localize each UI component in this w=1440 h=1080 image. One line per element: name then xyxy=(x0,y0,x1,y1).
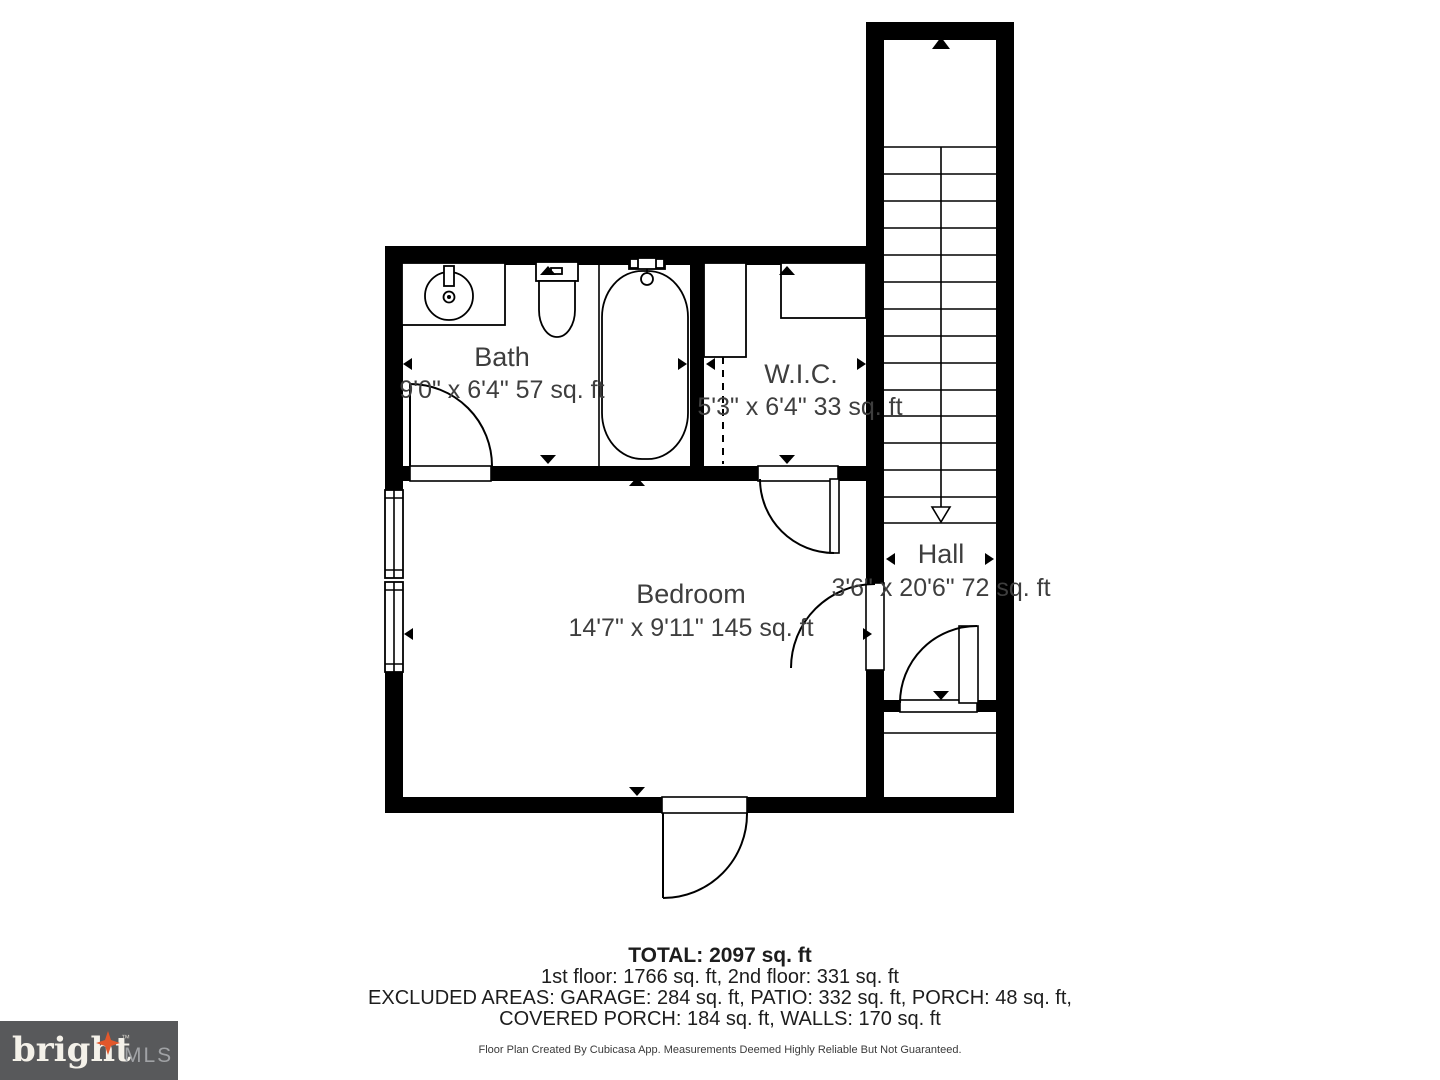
floor-plan-page: Bath 9'0" x 6'4" 57 sq. ft W.I.C. 5'3" x… xyxy=(0,0,1440,1080)
closet-cabinet-icon xyxy=(704,263,746,357)
bedroom-exterior-door-swing xyxy=(663,813,747,898)
room-dims-bedroom: 14'7" x 9'11" 145 sq. ft xyxy=(568,614,813,642)
logo-trademark: ™ xyxy=(121,1033,130,1043)
room-label-hall: Hall xyxy=(918,539,965,569)
bedroom-exterior-door-sill xyxy=(662,797,747,813)
wic-door-sill xyxy=(758,466,838,481)
disclaimer-text: Floor Plan Created By Cubicasa App. Meas… xyxy=(0,1044,1440,1056)
bath-fixtures xyxy=(402,258,688,466)
stairs-down-arrow-icon xyxy=(932,507,950,522)
wic-door-swing xyxy=(760,479,834,553)
room-dims-wic: 5'3" x 6'4" 33 sq. ft xyxy=(697,393,902,421)
area-summary: TOTAL: 2097 sq. ft 1st floor: 1766 sq. f… xyxy=(0,944,1440,1056)
total-area-text: TOTAL: 2097 sq. ft xyxy=(0,944,1440,967)
floor-breakdown-text: 1st floor: 1766 sq. ft, 2nd floor: 331 s… xyxy=(0,967,1440,988)
bathtub-icon xyxy=(602,258,688,459)
room-label-wic: W.I.C. xyxy=(764,359,838,389)
logo-suffix-text: MLS xyxy=(124,1044,173,1068)
bedroom-windows xyxy=(385,490,403,672)
room-dims-bath: 9'0" x 6'4" 57 sq. ft xyxy=(399,376,604,404)
room-label-bath: Bath xyxy=(474,342,530,372)
closet-shelf-icon xyxy=(781,263,866,318)
excluded-areas-text-1: EXCLUDED AREAS: GARAGE: 284 sq. ft, PATI… xyxy=(0,988,1440,1009)
room-dims-hall: 3'6" x 20'6" 72 sq. ft xyxy=(831,574,1050,602)
logo-star-icon xyxy=(95,1030,121,1056)
bright-mls-logo: bright ™ MLS xyxy=(0,1021,178,1080)
staircase xyxy=(884,37,996,733)
floor-plan-canvas: Bath 9'0" x 6'4" 57 sq. ft W.I.C. 5'3" x… xyxy=(0,0,1440,1080)
bath-door-sill xyxy=(410,466,491,481)
room-label-bedroom: Bedroom xyxy=(636,579,746,609)
excluded-areas-text-2: COVERED PORCH: 184 sq. ft, WALLS: 170 sq… xyxy=(0,1009,1440,1030)
